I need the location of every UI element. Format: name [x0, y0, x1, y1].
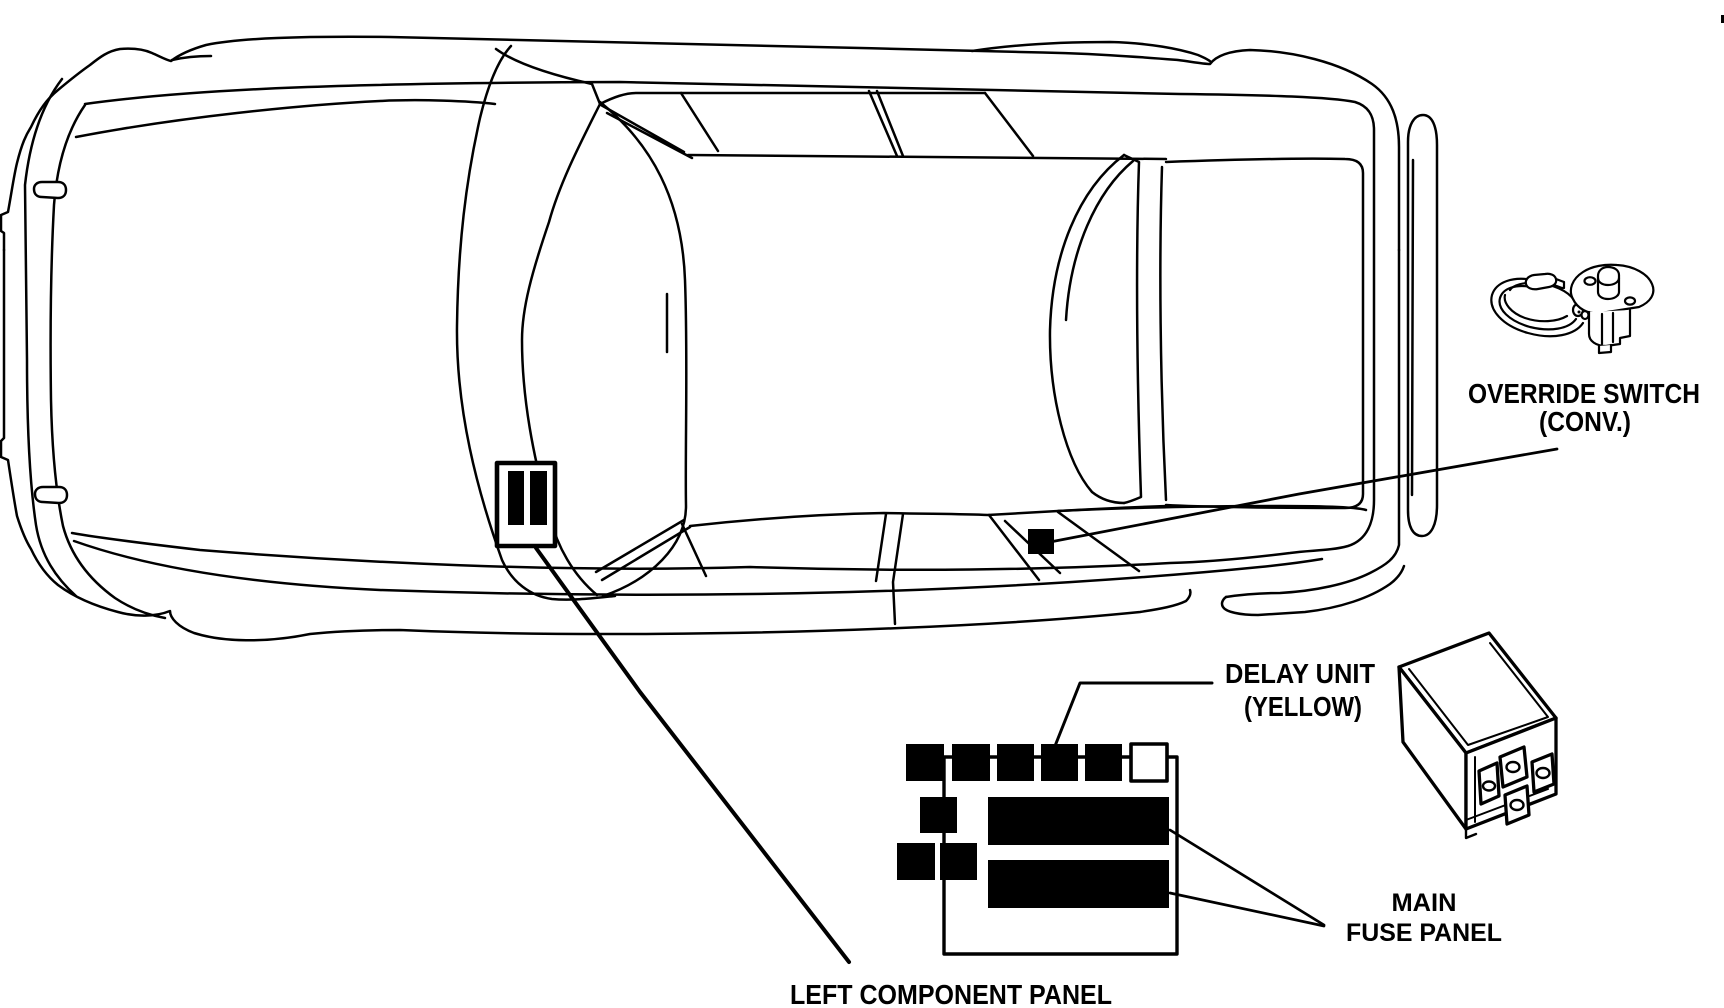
- svg-text:OVERRIDE SWITCH: OVERRIDE SWITCH: [1468, 378, 1700, 409]
- svg-text:DELAY UNIT: DELAY UNIT: [1225, 658, 1375, 689]
- svg-text:(YELLOW): (YELLOW): [1244, 691, 1362, 722]
- svg-text:LEFT COMPONENT PANEL: LEFT COMPONENT PANEL: [790, 979, 1112, 1008]
- svg-text:(CONV.): (CONV.): [1539, 406, 1631, 437]
- svg-text:MAIN: MAIN: [1392, 889, 1457, 917]
- svg-text:FUSE PANEL: FUSE PANEL: [1346, 919, 1502, 947]
